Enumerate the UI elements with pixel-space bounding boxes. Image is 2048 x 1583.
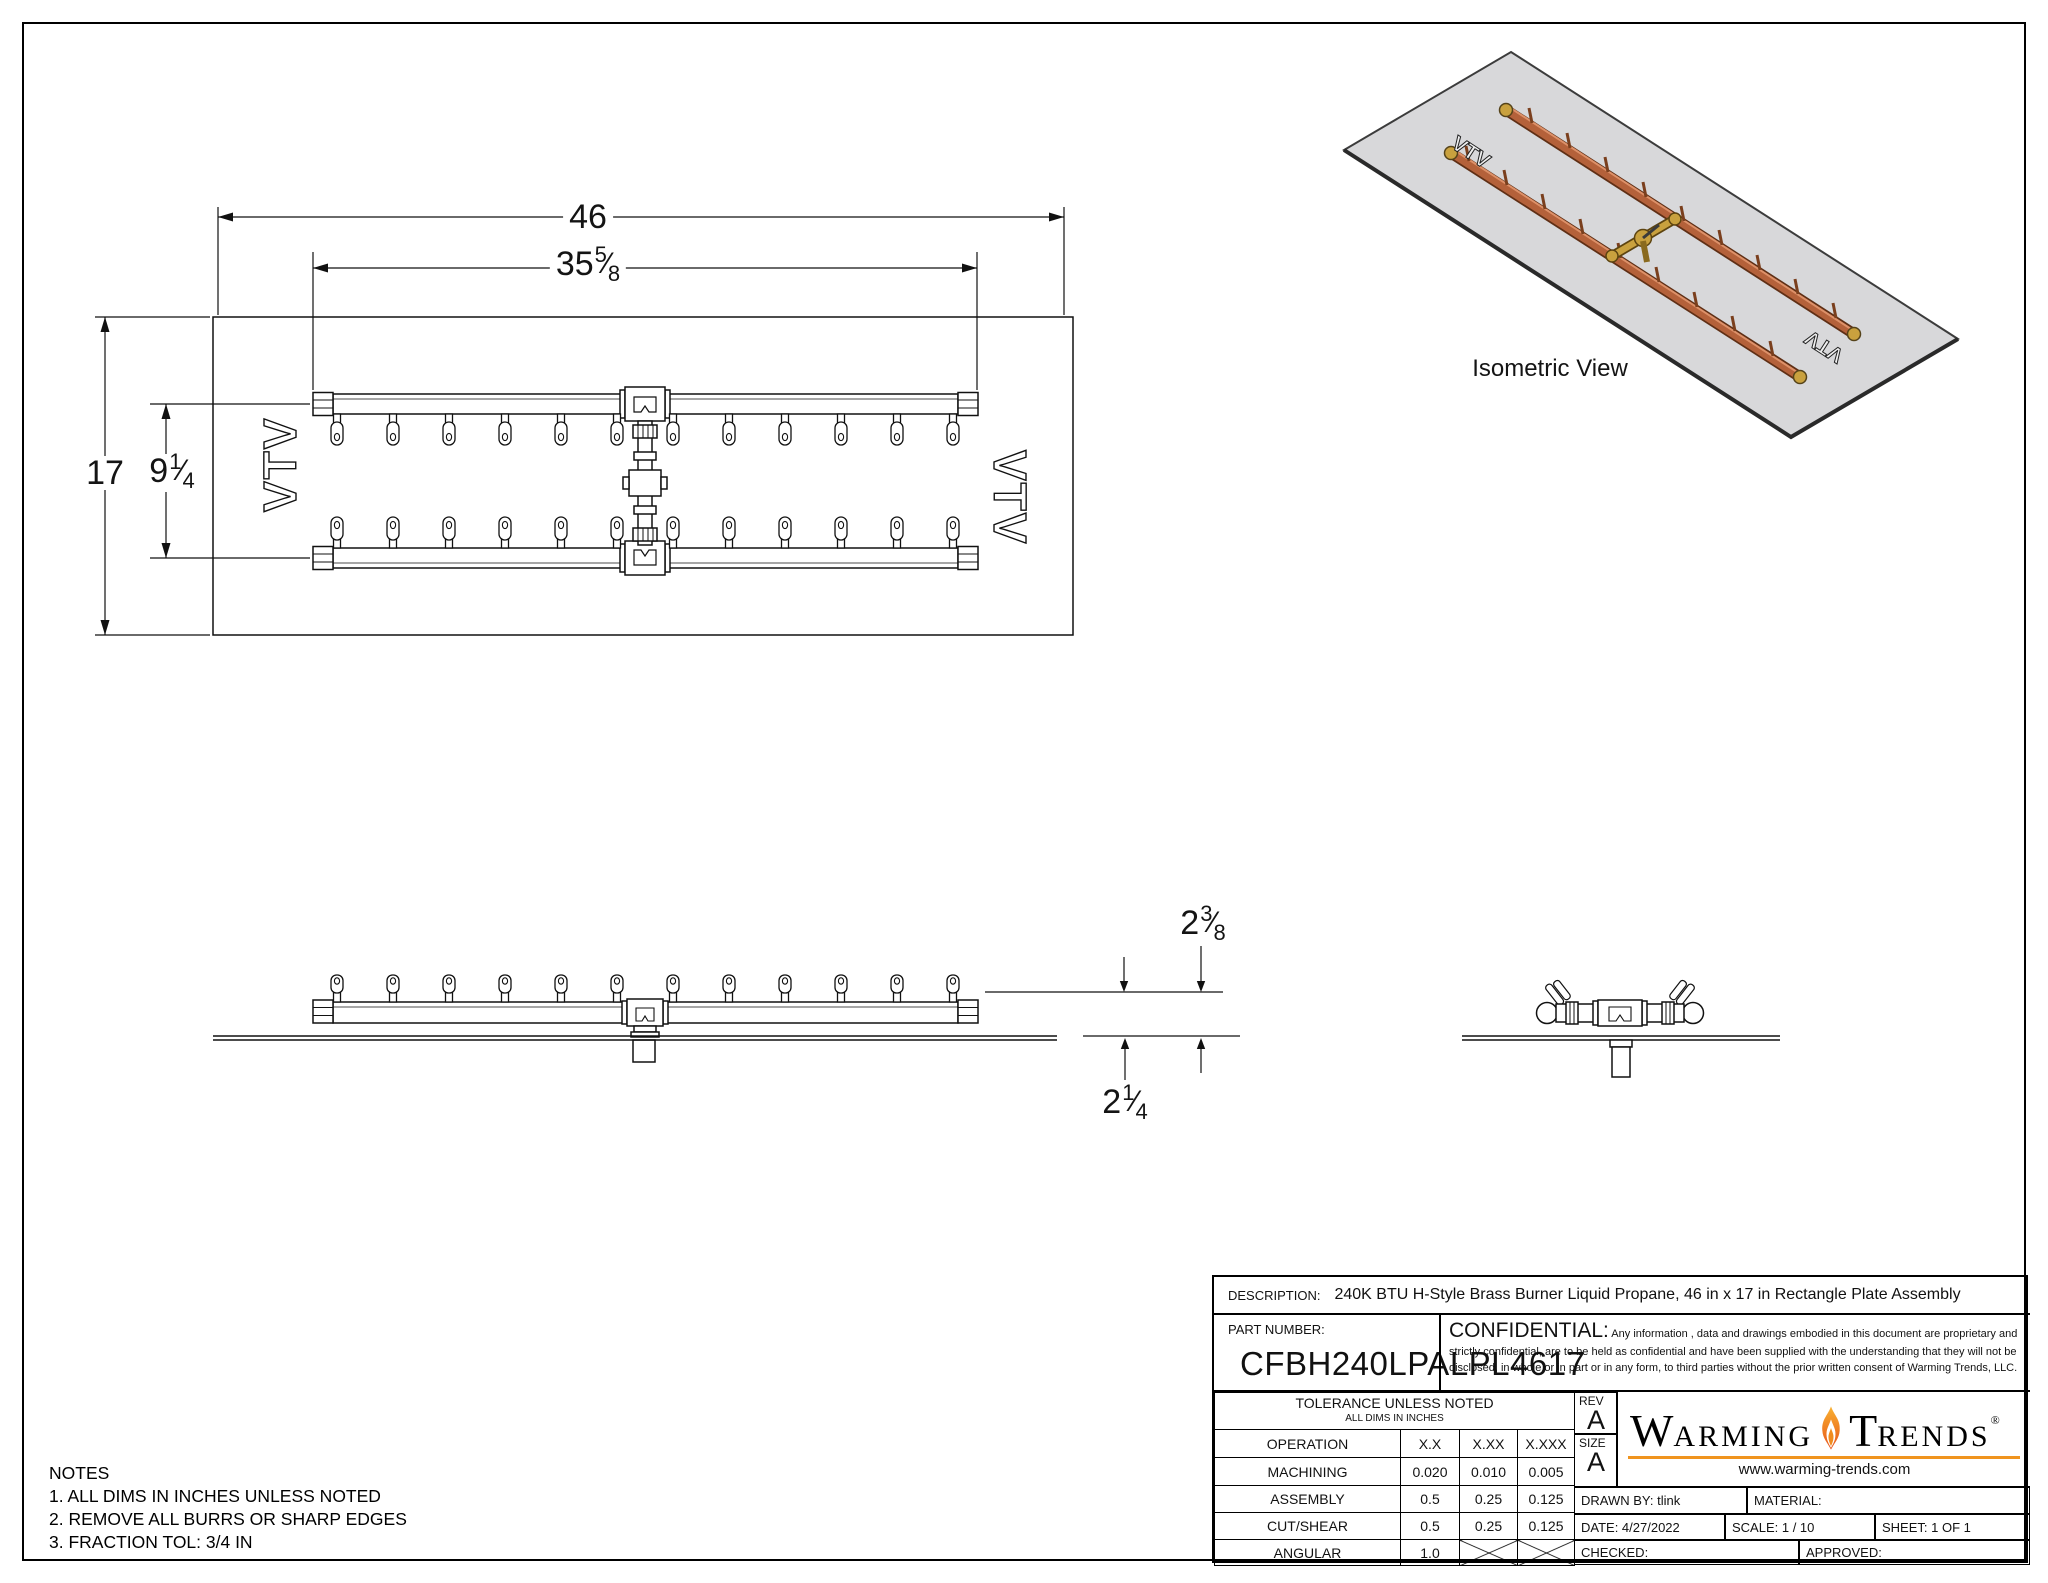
end-view (1462, 978, 1780, 1077)
side-view (213, 946, 1240, 1080)
approved-cell: APPROVED: (1799, 1540, 2030, 1565)
isometric-view-label: Isometric View (1472, 355, 1628, 383)
note-line: 2. REMOVE ALL BURRS OR SHARP EDGES (49, 1508, 407, 1531)
rev-cell: REV A (1574, 1392, 1617, 1434)
dim-label-17: 17 (80, 456, 130, 490)
description-value: 240K BTU H-Style Brass Burner Liquid Pro… (1334, 1286, 1960, 1304)
warming-trends-logo: WARMING TRENDS® (1630, 1398, 2000, 1454)
size-value: A (1587, 1449, 1605, 1476)
drawn-by-cell: DRAWN BY: tlink (1574, 1487, 1747, 1514)
dim-label-9-1-4: 91⁄4 (143, 454, 200, 492)
checked-cell: CHECKED: (1574, 1540, 1799, 1565)
dim-label-46: 46 (563, 200, 613, 234)
tolerance-table: TOLERANCE UNLESS NOTED ALL DIMS IN INCHE… (1214, 1392, 1575, 1566)
sheet-cell: SHEET: 1 OF 1 (1875, 1514, 2030, 1540)
notes-title: NOTES (49, 1462, 407, 1485)
description-label: DESCRIPTION: (1228, 1288, 1320, 1303)
tolerance-row-angular: ANGULAR 1.0 (1215, 1540, 1575, 1566)
vtv-mark-left: VTV (254, 417, 306, 512)
confidential-cell: CONFIDENTIAL: Any information , data and… (1439, 1315, 2030, 1392)
dim-label-35-5-8: 355⁄8 (550, 247, 626, 285)
tolerance-header: TOLERANCE UNLESS NOTED ALL DIMS IN INCHE… (1215, 1393, 1575, 1430)
date-cell: DATE: 4/27/2022 (1574, 1514, 1725, 1540)
dim-2-3-8 (1120, 946, 1205, 992)
tolerance-row-assembly: ASSEMBLY 0.5 0.25 0.125 (1215, 1486, 1575, 1513)
rev-value: A (1587, 1407, 1605, 1434)
flame-icon (1818, 1404, 1844, 1452)
description-row: DESCRIPTION: 240K BTU H-Style Brass Burn… (1214, 1277, 2030, 1315)
registered-mark: ® (1991, 1413, 2000, 1428)
tolerance-row-cutshear: CUT/SHEAR 0.5 0.25 0.125 (1215, 1513, 1575, 1540)
note-line: 1. ALL DIMS IN INCHES UNLESS NOTED (49, 1485, 407, 1508)
tolerance-row-machining: MACHINING 0.020 0.010 0.005 (1215, 1458, 1575, 1486)
confidential-label: CONFIDENTIAL: (1449, 1319, 1609, 1342)
dim-46 (218, 207, 1064, 315)
logo-url: www.warming-trends.com (1618, 1461, 2031, 1478)
part-number-label: PART NUMBER: (1228, 1322, 1325, 1337)
size-cell: SIZE A (1574, 1434, 1617, 1487)
scale-cell: SCALE: 1 / 10 (1725, 1514, 1875, 1540)
isometric-view: VTV VTV (1344, 52, 1958, 437)
notes-block: NOTES 1. ALL DIMS IN INCHES UNLESS NOTED… (49, 1462, 407, 1554)
dim-label-2-3-8: 23⁄8 (1174, 906, 1231, 944)
logo-rule (1628, 1456, 2020, 1459)
logo-cell: WARMING TRENDS® www.warming-trends.com (1617, 1392, 2030, 1487)
tolerance-columns-row: OPERATION X.X X.XX X.XXX (1215, 1430, 1575, 1458)
part-number-cell: PART NUMBER: CFBH240LPALPL4617 (1214, 1315, 1439, 1392)
dim-label-2-1-4: 21⁄4 (1096, 1085, 1153, 1123)
drawing-sheet: VTV VTV (0, 0, 2048, 1583)
dim-2-1-4 (1121, 1038, 1205, 1080)
note-line: 3. FRACTION TOL: 3/4 IN (49, 1531, 407, 1554)
side-nozzles (331, 975, 959, 1002)
material-cell: MATERIAL: (1747, 1487, 2030, 1514)
title-block: DESCRIPTION: 240K BTU H-Style Brass Burn… (1212, 1275, 2028, 1563)
vtv-mark-right: VTV (984, 450, 1036, 545)
